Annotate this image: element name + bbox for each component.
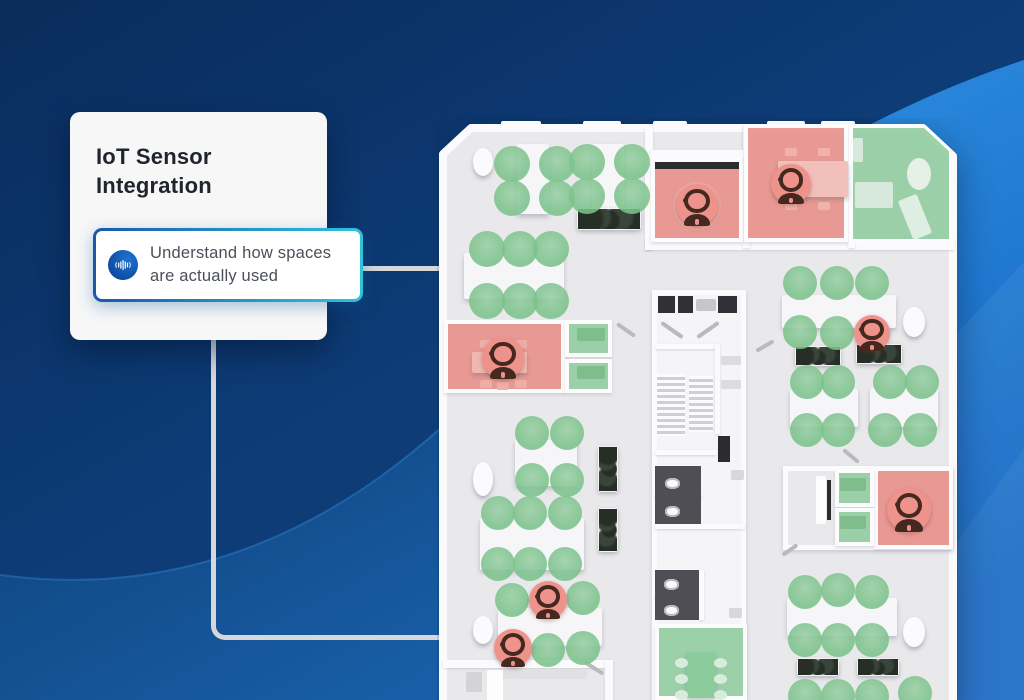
person-occupied-indicator (529, 581, 567, 619)
screen-board (718, 436, 730, 462)
seat-available-indicator (788, 679, 822, 700)
plant-icon (797, 658, 839, 676)
seat-available-indicator (788, 623, 822, 657)
chair (515, 380, 527, 388)
furniture-item (577, 328, 605, 341)
desk-table (686, 652, 716, 698)
seat-available-indicator (513, 496, 547, 530)
callout-text: Understand how spaces are actually used (150, 242, 348, 288)
seat-available-indicator (548, 547, 582, 581)
office-floorplan (437, 118, 1024, 700)
chair (497, 382, 509, 390)
person-occupied-indicator (676, 184, 718, 226)
pouf-stool (473, 462, 493, 496)
chair (675, 690, 688, 700)
chair (675, 674, 688, 684)
seat-available-indicator (513, 547, 547, 581)
seat-available-indicator (614, 144, 650, 180)
chair (675, 658, 688, 668)
furniture-item (816, 476, 826, 524)
furniture-item (721, 380, 741, 389)
seat-available-indicator (821, 413, 855, 447)
pouf-stool (903, 307, 925, 337)
floorplan-elements (437, 118, 1024, 700)
audio-waveform-icon (108, 250, 138, 280)
seat-available-indicator (873, 365, 907, 399)
door-swing (842, 448, 860, 464)
furniture-item (503, 670, 587, 679)
seat-available-indicator (614, 178, 650, 214)
furniture-item (840, 516, 866, 529)
furniture-item (731, 470, 744, 480)
chair (907, 158, 931, 190)
chair (714, 658, 727, 668)
furniture-item (729, 608, 742, 618)
wall (715, 344, 720, 434)
toilet-icon (664, 605, 679, 616)
seat-available-indicator (569, 144, 605, 180)
furniture-item (466, 672, 482, 692)
seat-available-indicator (790, 413, 824, 447)
seat-available-indicator (533, 231, 569, 267)
card-title: IoT Sensor Integration (96, 142, 266, 200)
wall (699, 570, 704, 620)
seat-available-indicator (533, 283, 569, 319)
toilet-icon (665, 478, 680, 489)
furniture-item (577, 366, 605, 379)
seat-available-indicator (469, 231, 505, 267)
seat-available-indicator (783, 315, 817, 349)
door-swing (755, 339, 774, 352)
sensor-callout-inner: Understand how spaces are actually used (96, 231, 360, 299)
seat-available-indicator (481, 547, 515, 581)
seat-available-indicator (898, 676, 932, 700)
seat-available-indicator (569, 178, 605, 214)
furniture-item (721, 356, 741, 365)
seat-available-indicator (469, 283, 505, 319)
seat-available-indicator (515, 416, 549, 450)
seat-available-indicator (550, 463, 584, 497)
connector-line-elbow (211, 338, 448, 640)
wall (655, 450, 717, 455)
seat-available-indicator (855, 266, 889, 300)
seat-available-indicator (855, 679, 889, 700)
toilet-icon (665, 506, 680, 517)
seat-available-indicator (495, 583, 529, 617)
pouf-stool (473, 148, 493, 176)
wall (655, 344, 717, 349)
chair (818, 202, 830, 210)
seat-available-indicator (820, 316, 854, 350)
seat-available-indicator (566, 631, 600, 665)
seat-available-indicator (790, 365, 824, 399)
seat-available-indicator (820, 266, 854, 300)
elevator-icon (678, 296, 693, 313)
chair (714, 674, 727, 684)
seat-available-indicator (821, 623, 855, 657)
seat-available-indicator (788, 575, 822, 609)
seat-available-indicator (855, 575, 889, 609)
wall (651, 150, 745, 158)
screen-board (655, 162, 739, 169)
staircase-icon (689, 376, 713, 432)
furniture-item (840, 478, 866, 491)
chair (818, 148, 830, 156)
person-occupied-indicator (494, 629, 532, 667)
wall (605, 660, 613, 700)
toilet-icon (664, 579, 679, 590)
seat-available-indicator (566, 581, 600, 615)
plant-icon (857, 658, 899, 676)
seat-available-indicator (855, 623, 889, 657)
seat-available-indicator (903, 413, 937, 447)
seat-available-indicator (481, 496, 515, 530)
pouf-stool (903, 617, 925, 647)
staircase-icon (657, 374, 685, 436)
hero-illustration: IoT Sensor Integration (0, 0, 1024, 700)
seat-available-indicator (515, 463, 549, 497)
person-occupied-indicator (887, 488, 931, 532)
seat-available-indicator (783, 266, 817, 300)
chair (480, 380, 492, 388)
seat-available-indicator (531, 633, 565, 667)
furniture-item (855, 182, 893, 208)
person-occupied-indicator (771, 164, 811, 204)
seat-available-indicator (494, 146, 530, 182)
furniture-item (853, 138, 863, 162)
chair (785, 148, 797, 156)
person-occupied-indicator (854, 315, 890, 351)
elevator-icon (658, 296, 675, 313)
seat-available-indicator (548, 496, 582, 530)
screen-board (827, 480, 831, 520)
elevator-icon (718, 296, 737, 313)
connector-line-horizontal (360, 266, 442, 271)
furniture-item (487, 670, 503, 700)
door-swing (616, 322, 636, 338)
seat-available-indicator (821, 573, 855, 607)
person-occupied-indicator (482, 337, 524, 379)
seat-available-indicator (821, 679, 855, 700)
furniture-item (696, 299, 716, 311)
pouf-stool (473, 616, 493, 644)
sensor-callout-chip[interactable]: Understand how spaces are actually used (93, 228, 363, 302)
feature-card: IoT Sensor Integration (70, 112, 327, 340)
chair (714, 690, 727, 700)
seat-available-indicator (494, 180, 530, 216)
seat-available-indicator (821, 365, 855, 399)
wall (655, 524, 745, 529)
seat-available-indicator (550, 416, 584, 450)
seat-available-indicator (905, 365, 939, 399)
plant-icon (598, 446, 618, 492)
seat-available-indicator (868, 413, 902, 447)
plant-icon (598, 508, 618, 552)
